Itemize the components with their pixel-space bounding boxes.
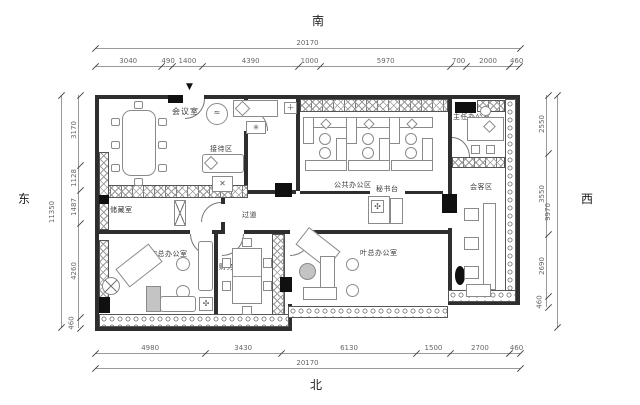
dim-label: 2000	[466, 57, 510, 65]
wall	[300, 191, 370, 194]
dim-segment: 1500	[417, 341, 450, 353]
chair	[134, 101, 143, 109]
decor-strip	[505, 99, 516, 291]
stool	[464, 266, 479, 279]
dim-label: 460	[68, 316, 76, 329]
dim-left-segments: 3170112814874260460	[64, 95, 79, 328]
hatch-strip	[99, 152, 109, 230]
desk	[391, 160, 433, 171]
sofa	[160, 296, 196, 312]
dim-right-segments: 255035502690460	[532, 95, 547, 307]
chair	[111, 164, 120, 172]
dim-segment: 2700	[450, 341, 510, 353]
dim-label: 490	[161, 57, 172, 65]
desk-return	[389, 117, 400, 144]
dim-top-total: 20170	[95, 34, 520, 49]
wall	[95, 327, 292, 331]
column-block	[280, 277, 292, 292]
room-label-storage: 储藏室	[110, 205, 133, 215]
desk	[232, 248, 262, 304]
cross-icon: ✕	[212, 180, 233, 188]
dim-segment: 4980	[95, 341, 205, 353]
dim-label: 460	[510, 344, 520, 352]
hatch-strip	[272, 234, 285, 318]
chair	[346, 258, 359, 271]
stool	[464, 208, 479, 221]
compass-east: 东	[18, 190, 30, 207]
dim-label: 5970	[320, 57, 450, 65]
bench	[483, 203, 496, 290]
room-label-corridor: 过道	[242, 210, 257, 220]
dim-label: 6130	[281, 344, 417, 352]
dim-label: 1128	[70, 169, 78, 187]
wall	[244, 131, 248, 187]
chair	[319, 133, 331, 145]
dim-bottom-total: 20170	[95, 354, 520, 369]
dim-label: 1487	[70, 198, 78, 216]
chair	[158, 141, 167, 149]
dim-label: 1400	[172, 57, 203, 65]
dim-label: 20170	[95, 39, 520, 47]
cabinet	[174, 200, 186, 226]
compass-north: 北	[310, 376, 322, 393]
dim-label: 9970	[544, 203, 552, 221]
desk-return	[303, 117, 314, 144]
dim-segment: 4260	[64, 223, 78, 317]
chair	[134, 178, 143, 186]
room-label-ye-office: 叶总办公室	[360, 248, 398, 258]
dim-segment: 2550	[532, 95, 546, 153]
dim-segment: 1487	[64, 190, 78, 223]
sofa	[198, 241, 213, 291]
dim-label: 460	[536, 295, 544, 308]
chair	[242, 306, 252, 315]
cabinet	[303, 287, 337, 300]
dim-segment: 1400	[172, 54, 203, 66]
dim-segment: 5970	[320, 54, 450, 66]
chair	[176, 257, 190, 271]
chair	[263, 258, 272, 268]
dim-label: 20170	[95, 359, 520, 367]
dim-label: 2550	[538, 115, 546, 133]
room-label-meeting: 会议室	[172, 106, 199, 117]
wall	[405, 191, 443, 194]
chair	[346, 284, 359, 297]
wall	[221, 222, 225, 234]
dim-segment: 3550	[532, 153, 546, 234]
chair	[111, 118, 120, 126]
chair	[480, 106, 491, 116]
wall	[312, 230, 448, 234]
dim-label: 11350	[48, 200, 56, 222]
wall	[214, 234, 218, 316]
dim-bottom-segments: 49803430613015002700460	[95, 341, 520, 354]
chair	[405, 133, 417, 145]
dim-segment: 460	[510, 341, 520, 353]
entrance-arrow-icon: ▼	[186, 83, 193, 92]
dim-segment: 460	[532, 296, 546, 307]
cabinet	[390, 198, 403, 224]
file-cabinet	[146, 286, 161, 312]
flower-icon: ✣	[199, 300, 213, 308]
dim-segment: 6130	[281, 341, 417, 353]
room-label-reception: 接待区	[210, 144, 233, 154]
dim-label: 1000	[299, 57, 321, 65]
chair	[158, 164, 167, 172]
dim-segment: 460	[510, 54, 520, 66]
desk	[348, 160, 390, 171]
dim-label: 3550	[538, 185, 546, 203]
desk	[305, 160, 347, 171]
chair	[242, 238, 252, 247]
dim-segment: 3040	[95, 54, 161, 66]
room-label-secretary: 秘书台	[376, 184, 399, 194]
chair	[222, 258, 231, 268]
column-block	[99, 195, 109, 204]
desk-return	[346, 117, 357, 144]
dim-segment: 700	[451, 54, 466, 66]
dim-segment: 2690	[532, 235, 546, 297]
chair	[362, 133, 374, 145]
fan-icon: ✳	[246, 124, 266, 132]
dim-segment: 3430	[205, 341, 281, 353]
flower-icon: ✣	[371, 203, 384, 211]
chair	[263, 281, 272, 291]
desk-return	[422, 138, 433, 161]
hatch-strip	[452, 157, 505, 168]
column-block	[168, 95, 183, 103]
dim-label: 4980	[95, 344, 205, 352]
dim-segment: 460	[64, 318, 78, 328]
dim-segment: 1000	[299, 54, 321, 66]
dim-segment: 490	[161, 54, 172, 66]
chair	[111, 141, 120, 149]
dim-label: 1500	[417, 344, 450, 352]
chair	[405, 147, 417, 159]
dim-label: 2690	[538, 257, 546, 275]
conference-table	[122, 110, 156, 176]
compass-south: 南	[312, 12, 324, 29]
dim-label: 3430	[205, 344, 281, 352]
compass-west: 西	[581, 190, 593, 207]
decor-strip	[99, 314, 289, 327]
chair	[486, 145, 495, 154]
bench	[466, 284, 491, 297]
door-arc	[201, 202, 221, 222]
dim-label: 2700	[450, 344, 510, 352]
chair	[319, 147, 331, 159]
dim-right-total: 9970	[557, 95, 558, 328]
chair	[158, 118, 167, 126]
room-label-open-office: 公共办公区	[334, 180, 372, 190]
wall	[99, 230, 190, 234]
decor-strip	[288, 306, 448, 318]
dim-label: 3040	[95, 57, 161, 65]
hatch-strip	[300, 99, 448, 112]
dim-label: 4260	[70, 262, 78, 280]
room-label-guest: 会客区	[470, 182, 493, 192]
floor-plan: 南 北 东 西 20170 30404901400439010005970700…	[0, 0, 640, 405]
dim-label: 700	[451, 57, 466, 65]
executive-chair	[102, 277, 120, 295]
chair	[222, 281, 231, 291]
column-block	[275, 183, 292, 197]
column-block	[442, 194, 457, 213]
chair	[471, 145, 480, 154]
executive-chair	[299, 263, 316, 280]
dim-label: 460	[510, 57, 520, 65]
dim-segment: 1128	[64, 165, 78, 190]
dim-label: 4390	[203, 57, 299, 65]
dim-segment: 2000	[466, 54, 510, 66]
stool	[464, 237, 479, 250]
dim-left-total: 11350	[61, 95, 62, 328]
dim-segment: 3170	[64, 95, 78, 165]
plus-icon: ＋	[284, 104, 297, 112]
chair	[362, 147, 374, 159]
dim-segment: 4390	[203, 54, 299, 66]
squiggle-icon: ≈	[206, 109, 228, 117]
dim-top-segments: 304049014004390100059707002000460	[95, 54, 520, 67]
column-block	[99, 297, 110, 313]
wall	[516, 95, 520, 303]
dim-label: 3170	[70, 121, 78, 139]
